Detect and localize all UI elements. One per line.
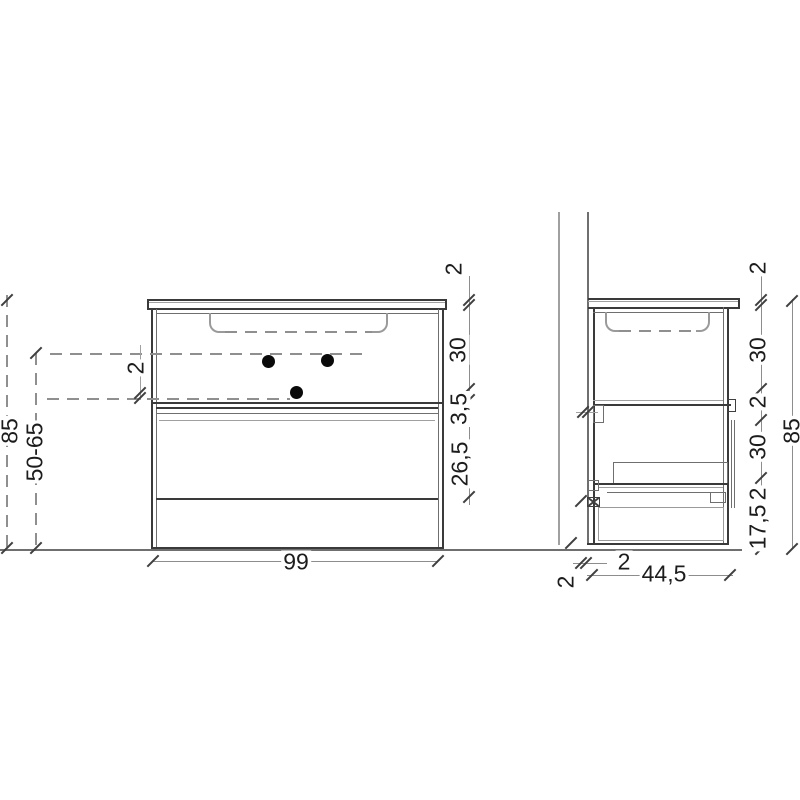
side-front-lip: [727, 399, 736, 412]
side-bottom-section-label: 17,5: [747, 503, 770, 552]
side-bottom-line: [587, 543, 729, 545]
front-countertop-left-end: [147, 299, 149, 310]
drawer-base-line-2: [598, 487, 723, 488]
lower-guide-dashed-line: [47, 398, 290, 400]
bottom-bracket-tick: [575, 495, 588, 508]
front-lower-unit-top-line: [156, 407, 438, 409]
side-shelf-upper-line: [593, 400, 723, 401]
wall-bottom-tick: [565, 537, 578, 550]
side-small-label: 2: [747, 486, 770, 503]
back-mounting-bracket: [593, 405, 604, 423]
basin-right-corner: [372, 313, 388, 333]
front-shelf-line: [151, 402, 443, 404]
faucet-hole-dot-left: [262, 355, 275, 368]
side-mid-section-label: 30: [747, 432, 770, 462]
rail-right-block: [710, 492, 726, 503]
front-drawer-divider-line: [156, 498, 438, 500]
rail-left-block: [588, 480, 599, 491]
drawer-box-section: [613, 462, 728, 484]
technical-drawing-canvas: 2 85 50-65 2 30 3,5 26,5 99: [0, 0, 800, 800]
side-basin-dashed-line: [619, 330, 696, 332]
side-total-height-label: 85: [781, 416, 800, 446]
basin-left-corner: [209, 313, 225, 333]
front-right-panel-inner: [438, 309, 439, 549]
side-countertop-thickness-label: 2: [747, 260, 770, 277]
drawer-front-overlay-outer: [731, 420, 732, 508]
side-countertop-front-end: [738, 298, 740, 308]
wall-face-line: [587, 212, 589, 543]
side-countertop-mid-line: [588, 301, 740, 302]
back-offset-label: 2: [616, 551, 633, 574]
side-front-outer-line: [727, 307, 729, 544]
side-basin-left-corner: [605, 312, 619, 332]
side-back-panel-line: [593, 307, 595, 544]
front-drawer-front-label: 26,5: [449, 440, 472, 489]
drawer-base-line: [593, 483, 728, 485]
front-drawer-gap-line: [159, 420, 435, 421]
front-countertop-mid-line: [147, 302, 447, 303]
front-lower-unit-rail-line: [156, 413, 438, 414]
front-upper-section-label: 30: [447, 335, 470, 365]
width-label: 99: [281, 551, 311, 574]
front-interior-top-line: [156, 313, 438, 314]
front-countertop-bottom-line: [147, 308, 447, 310]
bottom-drawer-section: [598, 507, 724, 541]
front-left-panel-inner: [156, 309, 157, 549]
side-shelf-label: 2: [747, 394, 770, 411]
front-countertop-right-end: [445, 299, 447, 310]
side-countertop-top-line: [588, 298, 740, 300]
side-shelf-lower-line: [593, 404, 731, 406]
faucet-hole-dot-center: [290, 386, 303, 399]
front-countertop-thickness-label: 2: [443, 261, 466, 278]
wall-gap-label: 2: [555, 574, 578, 591]
upper-guide-dashed-line: [50, 353, 370, 355]
side-countertop-bottom-line: [588, 307, 740, 309]
front-countertop-top-line: [147, 299, 447, 301]
side-upper-section-label: 30: [747, 335, 770, 365]
depth-label: 44,5: [640, 563, 689, 586]
basin-bottom-dashed-line: [225, 331, 372, 333]
side-basin-right-corner: [696, 312, 710, 332]
mount-range-label: 50-65: [24, 421, 47, 484]
drawer-front-overlay-inner: [734, 420, 735, 508]
wall-outer-line: [558, 212, 560, 545]
drawer-rail-line: [607, 492, 712, 493]
faucet-hole-dot-right: [321, 354, 334, 367]
front-offset-dim-label: 2: [125, 360, 148, 377]
front-shelf-label: 3,5: [448, 391, 471, 427]
front-left-panel-outer: [151, 309, 153, 549]
total-height-label: 85: [0, 416, 22, 446]
